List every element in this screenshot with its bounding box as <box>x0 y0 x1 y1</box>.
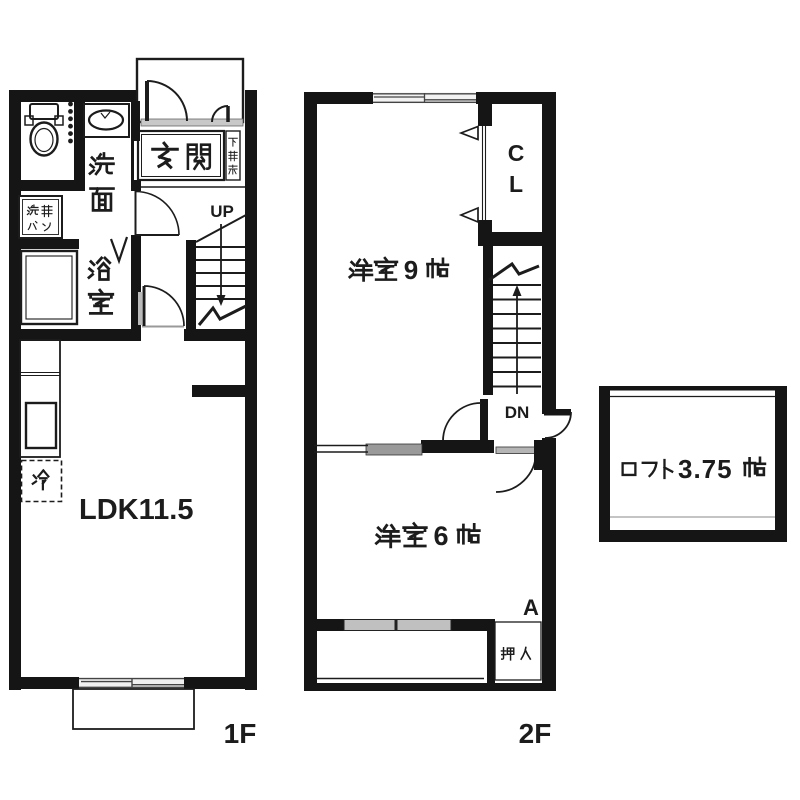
svg-text:LDK11.5: LDK11.5 <box>79 494 193 526</box>
svg-text:3.75: 3.75 <box>678 454 733 484</box>
svg-text:9: 9 <box>404 255 418 285</box>
svg-text:1F: 1F <box>224 718 257 749</box>
svg-text:A: A <box>523 595 539 620</box>
svg-text:2F: 2F <box>519 718 552 749</box>
svg-text:UP: UP <box>210 202 234 221</box>
svg-text:6: 6 <box>433 521 448 551</box>
svg-text:C: C <box>508 140 525 166</box>
svg-text:L: L <box>509 171 523 197</box>
svg-text:DN: DN <box>505 403 530 422</box>
